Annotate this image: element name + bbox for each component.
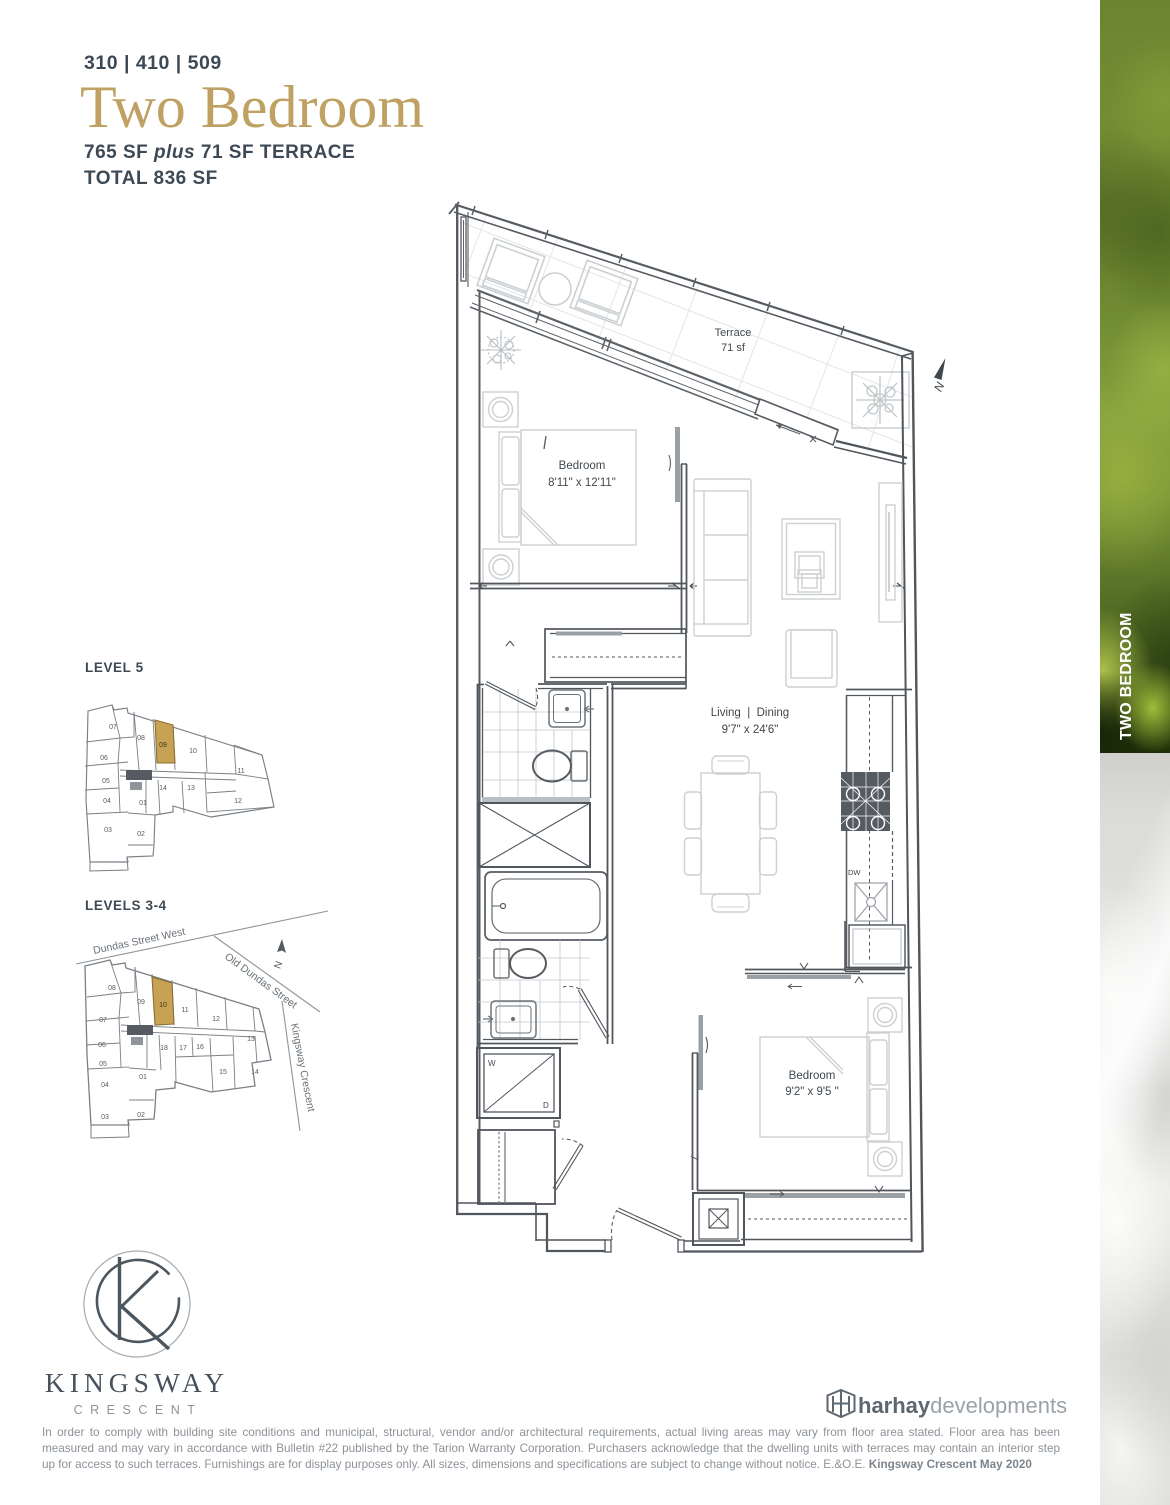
svg-text:06: 06 bbox=[98, 1042, 106, 1049]
svg-text:18: 18 bbox=[160, 1045, 168, 1052]
svg-text:07: 07 bbox=[109, 724, 117, 731]
svg-text:02: 02 bbox=[137, 831, 145, 838]
svg-text:LEVELS 3-4: LEVELS 3-4 bbox=[85, 898, 167, 913]
svg-text:Dundas Street West: Dundas Street West bbox=[92, 926, 186, 957]
svg-text:Kingsway Crescent: Kingsway Crescent bbox=[288, 1022, 317, 1113]
svg-text:harhaydevelopments: harhaydevelopments bbox=[858, 1393, 1067, 1418]
svg-text:11: 11 bbox=[181, 1007, 188, 1014]
svg-text:17: 17 bbox=[179, 1045, 187, 1052]
svg-text:14: 14 bbox=[159, 785, 167, 792]
svg-text:05: 05 bbox=[102, 778, 110, 785]
svg-text:06: 06 bbox=[100, 755, 108, 762]
svg-text:09: 09 bbox=[159, 742, 167, 749]
svg-text:04: 04 bbox=[101, 1082, 109, 1089]
svg-text:16: 16 bbox=[196, 1044, 204, 1051]
svg-text:05: 05 bbox=[99, 1061, 107, 1068]
svg-text:13: 13 bbox=[187, 785, 195, 792]
svg-text:08: 08 bbox=[137, 735, 145, 742]
svg-text:01: 01 bbox=[139, 800, 147, 807]
svg-text:12: 12 bbox=[212, 1016, 220, 1023]
svg-text:03: 03 bbox=[101, 1114, 109, 1121]
svg-text:N: N bbox=[272, 960, 285, 971]
svg-text:14: 14 bbox=[251, 1069, 259, 1076]
svg-text:KINGSWAY: KINGSWAY bbox=[45, 1367, 229, 1398]
svg-text:08: 08 bbox=[108, 985, 116, 992]
svg-text:15: 15 bbox=[219, 1069, 227, 1076]
svg-text:04: 04 bbox=[103, 798, 111, 805]
svg-text:03: 03 bbox=[104, 827, 112, 834]
svg-text:07: 07 bbox=[99, 1017, 107, 1024]
svg-text:10: 10 bbox=[159, 1002, 167, 1009]
svg-text:13: 13 bbox=[247, 1036, 255, 1043]
svg-text:09: 09 bbox=[137, 999, 145, 1006]
svg-text:02: 02 bbox=[137, 1112, 145, 1119]
svg-text:11: 11 bbox=[237, 768, 244, 775]
svg-text:01: 01 bbox=[139, 1074, 147, 1081]
svg-text:LEVEL 5: LEVEL 5 bbox=[85, 660, 144, 675]
svg-text:CRESCENT: CRESCENT bbox=[74, 1403, 203, 1417]
svg-text:12: 12 bbox=[234, 798, 242, 805]
svg-text:Old Dundas Street: Old Dundas Street bbox=[222, 951, 299, 1012]
svg-text:10: 10 bbox=[189, 748, 197, 755]
